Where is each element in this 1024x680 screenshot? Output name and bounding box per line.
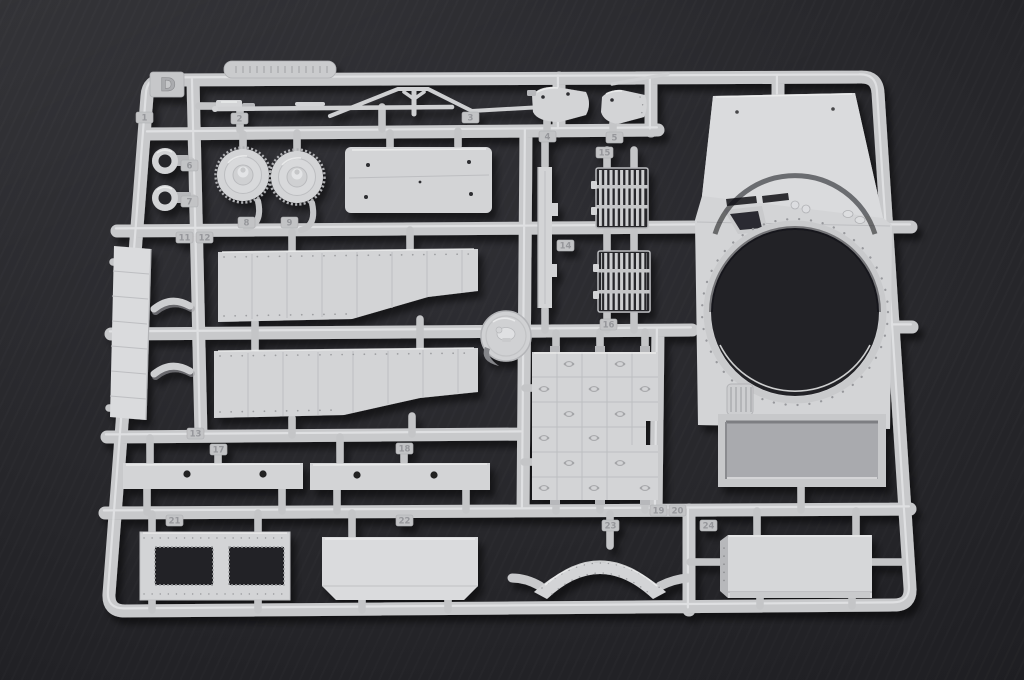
svg-text:18: 18 [399,445,411,455]
fender-panel-lower [214,348,478,418]
svg-text:5: 5 [612,134,618,144]
turret-roof-panel [695,93,892,487]
part-number-tab: 17 [210,444,227,456]
part-number-tab: 5 [606,132,623,144]
dome-ventilator-part-9 [270,150,325,205]
arch-elbow-runners [512,578,688,586]
drilled-strip-17 [123,463,303,489]
svg-text:19: 19 [653,507,665,517]
svg-text:8: 8 [244,219,250,229]
treadplate-floor-panel [532,346,658,505]
svg-text:12: 12 [199,234,211,244]
rectangular-recess [718,414,886,487]
sprue-letter: D [160,74,176,96]
part-number-tab: 6 [181,160,198,172]
part-number-tab: 16 [600,319,617,331]
part-number-tab: 23 [602,520,619,532]
small-hatch-part-5 [601,90,647,124]
svg-text:13: 13 [190,430,202,440]
part-number-tab: 14 [557,240,574,252]
svg-text:23: 23 [605,522,617,532]
part-number-tab: 12 [196,232,213,244]
segmented-sill-strip [110,246,151,420]
part-number-tab: 15 [596,147,613,159]
embossed-number-plate [224,61,336,78]
part-number-tab: 24 [700,520,717,532]
part-number-tab: 20 [669,505,686,517]
sprue-letter-tab: D [150,72,184,97]
part-number-tab: 18 [396,443,413,455]
photo-background: D [0,0,1024,680]
dome-ventilator-part-8 [216,148,271,203]
part-number-tab: 19 [650,505,667,517]
intake-grille-15 [591,168,648,228]
clipped-corner-panel [322,537,478,600]
svg-text:15: 15 [599,149,611,159]
part-number-tab: 11 [176,232,193,244]
svg-text:3: 3 [468,114,474,124]
small-hatch-part-4 [527,87,589,122]
part-number-tab: 3 [462,112,479,124]
frame-plate-two-openings [140,532,290,600]
part-number-tab: 13 [187,428,204,440]
part-number-tab: 22 [396,515,413,527]
part-number-tab: 4 [539,131,556,143]
intake-grille-16 [593,251,650,312]
part-number-tab: 2 [231,113,248,125]
svg-text:24: 24 [703,522,715,532]
flat-deck-panel [345,147,492,213]
svg-text:2: 2 [237,115,243,125]
drilled-strip-18 [310,463,490,490]
tall-bracket-part-14 [538,167,558,308]
svg-text:4: 4 [545,133,551,143]
svg-text:11: 11 [179,234,191,244]
part-number-tab: 9 [281,217,298,229]
svg-text:1: 1 [142,114,148,124]
svg-text:21: 21 [169,517,181,527]
svg-text:16: 16 [603,321,615,331]
small-grille-pad [727,384,753,415]
sprue-photo: D [0,0,1024,680]
svg-text:14: 14 [560,242,572,252]
part-number-tab: 21 [166,515,183,527]
sprue-frame-d: D [104,61,912,611]
svg-text:7: 7 [187,198,193,208]
part-number-tab: 7 [181,196,198,208]
svg-text:17: 17 [213,446,225,456]
svg-text:9: 9 [287,219,293,229]
svg-text:22: 22 [399,517,411,527]
svg-text:20: 20 [672,507,684,517]
svg-text:6: 6 [187,162,193,172]
part-number-tab: 8 [238,217,255,229]
fender-arch-part [534,561,666,599]
part-number-tab: 1 [136,112,153,124]
fender-panel-upper [218,249,478,322]
stowage-box-panel [720,535,872,598]
